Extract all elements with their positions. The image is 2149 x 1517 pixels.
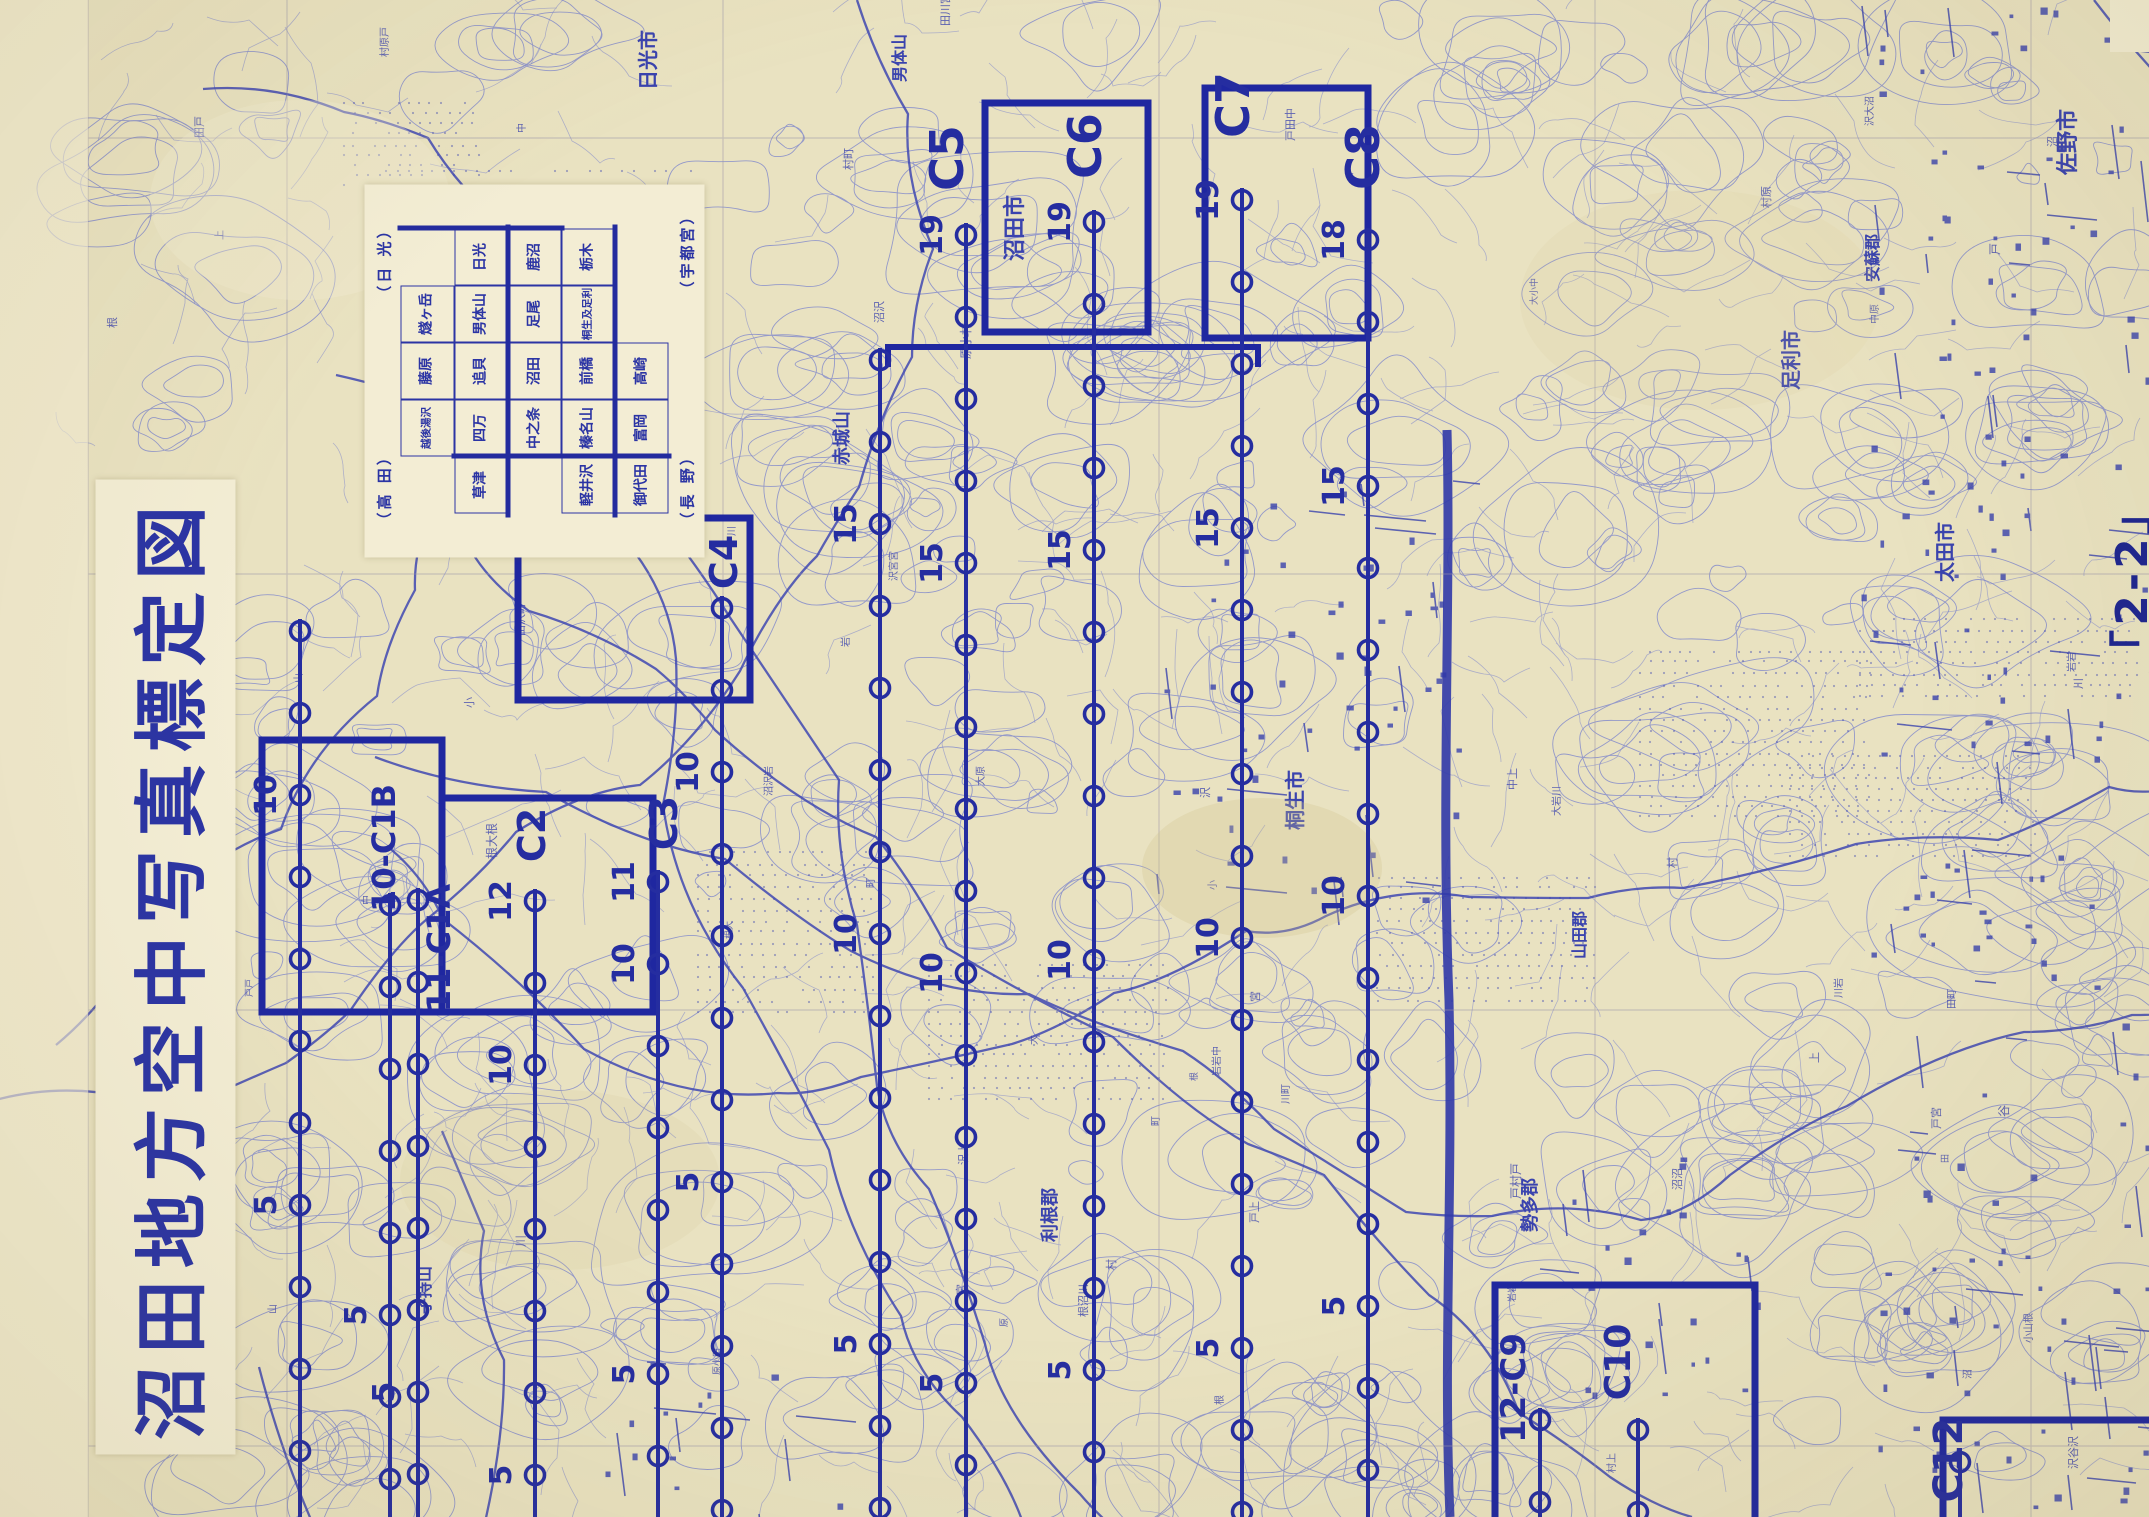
course-label-C3: C3 [642, 796, 686, 850]
photo-number: 5 [1043, 1360, 1078, 1381]
photo-number: 19 [1043, 201, 1078, 243]
course-label-C8: C8 [1336, 124, 1390, 190]
course-label-C7: C7 [1206, 72, 1260, 138]
photo-number: 15 [1317, 465, 1352, 507]
index-cell-empty [615, 229, 669, 286]
photo-number: 5 [367, 1382, 402, 1403]
photo-number: 10 [829, 913, 864, 955]
photo-number: 10 [915, 952, 950, 994]
index-cell-5-3: 高崎 [615, 343, 669, 400]
course-label-C1B: 10-C1B [365, 784, 403, 912]
index-cell-2-5: 日光 [454, 229, 508, 286]
map-title-banner: 沼田地方空中写真標定図 [96, 480, 236, 1455]
course-label-C9: 12-C9 [1494, 1333, 1534, 1443]
adjoining-sheet-label-nagano: （長 野） [677, 447, 698, 527]
quadrangle-index-grid: 越後湯沢藤原燧ヶ岳草津四万追貝男体山日光中之条沼田足尾鹿沼軽井沢榛名山前橋桐生及… [401, 229, 669, 514]
course-label-C1A: 11-C1A [420, 884, 458, 1013]
adjoining-sheet-label-nikko: （日 光） [374, 221, 395, 301]
index-cell-3-2: 中之条 [508, 400, 562, 457]
photo-number: 12 [484, 880, 519, 922]
photo-number: 10 [671, 751, 706, 793]
index-cell-2-2: 四万 [454, 400, 508, 457]
photo-number: 5 [1317, 1296, 1352, 1317]
index-cell-2-4: 男体山 [454, 286, 508, 343]
photo-number: 15 [915, 542, 950, 584]
index-cell-2-3: 追貝 [454, 343, 508, 400]
map-title: 沼田地方空中写真標定図 [112, 494, 219, 1440]
photo-number: 5 [829, 1334, 864, 1355]
course-label-C4: C4 [702, 535, 746, 589]
course-label-C6: C6 [1058, 113, 1112, 179]
photo-number: 5 [484, 1465, 519, 1486]
photo-number: 19 [1191, 179, 1226, 221]
index-cell-4-5: 栃木 [561, 229, 615, 286]
photo-number: 5 [339, 1305, 374, 1326]
course-label-C10: C10 [1598, 1324, 1639, 1401]
adjoining-sheet-label-utsunomiya: （宇都宮） [677, 207, 698, 297]
photo-number: 5 [915, 1373, 950, 1394]
photo-number: 10 [607, 943, 642, 985]
index-cell-empty [508, 457, 562, 514]
photo-number: 15 [829, 503, 864, 545]
index-bold-boundary [612, 225, 617, 518]
photo-number: 15 [1043, 529, 1078, 571]
course-label-C2: C2 [510, 808, 554, 862]
photo-number: 15 [1191, 507, 1226, 549]
sheet-index-panel: （高 田） （日 光） （長 野） （宇都宮） 越後湯沢藤原燧ヶ岳草津四万追貝男… [365, 185, 705, 558]
photo-number: 18 [1317, 219, 1352, 261]
index-cell-4-3: 前橋 [561, 343, 615, 400]
flight-line-overlay: 105510-C1B511-C1A12105C211105C3105C41510… [0, 0, 2149, 1517]
course-label-C5: C5 [920, 125, 974, 191]
photo-number: 5 [671, 1172, 706, 1193]
index-cell-2-1: 草津 [454, 457, 508, 514]
index-cell-empty [615, 286, 669, 343]
photo-number: 5 [1191, 1338, 1226, 1359]
photo-number: 10 [1317, 875, 1352, 917]
index-cell-3-4: 足尾 [508, 286, 562, 343]
photo-number: 10 [1043, 939, 1078, 981]
photo-number: 11 [607, 861, 642, 903]
photo-number: 5 [249, 1195, 284, 1216]
index-cell-1-3: 藤原 [401, 343, 455, 400]
index-cell-4-4: 桐生及足利 [561, 286, 615, 343]
index-cell-1-2: 越後湯沢 [401, 400, 455, 457]
photo-block-outline [1943, 1420, 2149, 1517]
index-bold-boundary [505, 225, 510, 518]
index-cell-3-5: 鹿沼 [508, 229, 562, 286]
index-bold-boundary [398, 226, 565, 231]
photo-number: 10 [484, 1044, 519, 1086]
adjoining-sheet-label-takada: （高 田） [374, 447, 395, 527]
photo-number: 10 [249, 774, 284, 816]
photo-block-edge [888, 347, 1258, 367]
index-cell-5-2: 富岡 [615, 400, 669, 457]
index-cell-empty [401, 229, 455, 286]
photo-number: 19 [915, 214, 950, 256]
sheet-number-label: 「2-2」 [2102, 460, 2149, 700]
index-cell-5-1: 御代田 [615, 457, 669, 514]
index-cell-1-4: 燧ヶ岳 [401, 286, 455, 343]
index-cell-4-2: 榛名山 [561, 400, 615, 457]
course-label-C12: C12 [1926, 1417, 1972, 1502]
photo-number: 5 [607, 1364, 642, 1385]
index-cell-empty [401, 457, 455, 514]
photo-number: 10 [1191, 917, 1226, 959]
index-cell-3-3: 沼田 [508, 343, 562, 400]
index-cell-4-1: 軽井沢 [561, 457, 615, 514]
scanned-aerial-photo-index-map: 岩山中原原小村大岩岩上沼沢岩根根大根山戸上小山根沢宮宮小谷戸宮村原戸宮沼沢中上町… [0, 0, 2149, 1517]
index-bold-boundary [451, 454, 671, 459]
